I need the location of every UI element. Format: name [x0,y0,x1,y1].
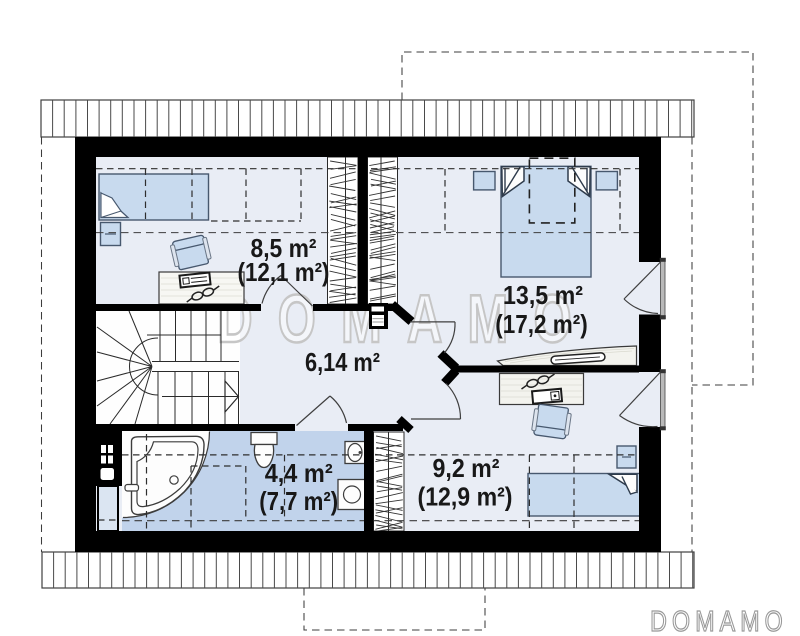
svg-text:(7,7 m²): (7,7 m²) [259,486,338,516]
svg-text:13,5 m²: 13,5 m² [503,280,583,310]
svg-text:(12,9 m²): (12,9 m²) [418,482,513,512]
svg-text:9,2 m²: 9,2 m² [433,453,500,483]
svg-text:(17,2 m²): (17,2 m²) [495,309,588,339]
svg-text:(12,1 m²): (12,1 m²) [238,257,330,287]
svg-text:6,14 m²: 6,14 m² [305,347,380,377]
svg-text:4,4 m²: 4,4 m² [265,458,333,488]
svg-text:DOMAMO: DOMAMO [650,604,788,636]
